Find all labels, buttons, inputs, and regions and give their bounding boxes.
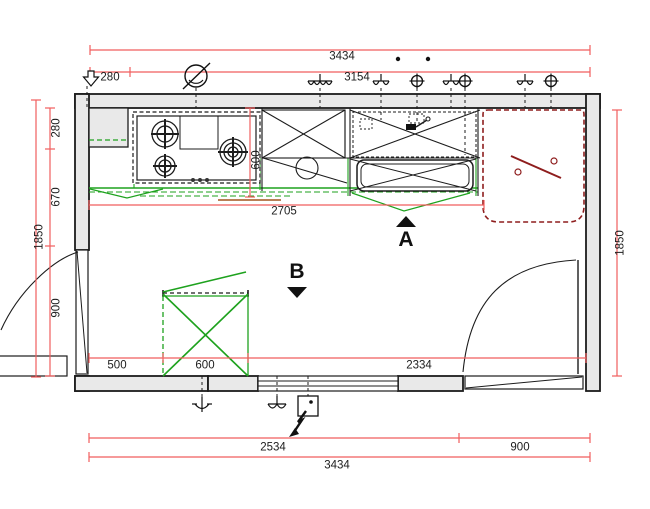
dim-label-left-upper: 280: [51, 118, 63, 137]
window: [258, 376, 398, 391]
left-wall-upper: [75, 94, 89, 250]
top-wall: [75, 94, 600, 108]
ceiling-light-icon: [183, 63, 210, 89]
left-inner-dim: [45, 108, 55, 376]
wall-lamp-icon-2: [443, 74, 459, 85]
floor-plan-drawing: [0, 0, 650, 509]
entry-door: [0, 250, 88, 376]
dim-label-right-total: 1850: [615, 230, 627, 256]
wall-lamp-icon-3: [517, 74, 533, 85]
floor-plan-canvas: 3434 280 3154 2705 600 280 670 1850 900 …: [0, 0, 650, 509]
column: [89, 108, 128, 147]
drain-circle: [296, 157, 318, 179]
cooktop: [133, 112, 260, 183]
pendant-lamp-icon: [192, 397, 212, 412]
sink-unit: [350, 110, 480, 191]
socket-icon-2: [458, 74, 473, 89]
wall-lamp-icon-1: [373, 74, 389, 85]
dim-label-bottom-run: 2534: [260, 442, 286, 454]
dim-label-left-total: 1850: [34, 224, 46, 250]
dim-label-top-run: 3154: [344, 72, 370, 84]
switch-box-icon: [298, 396, 318, 416]
dim-label-top-total: 3434: [329, 51, 355, 63]
section-a-arrow-icon: [396, 216, 416, 227]
dim-label-floor-right: 2334: [406, 360, 432, 372]
dim-label-left-lower: 900: [51, 298, 63, 317]
dim-label-counter-depth: 600: [251, 150, 263, 169]
socket-icon-1: [410, 74, 425, 89]
dim-label-left-mid: 670: [51, 187, 63, 206]
top-run-dim: [90, 67, 590, 77]
patio-door: [463, 260, 583, 389]
bottom-wall-right: [398, 376, 463, 391]
socket-icon-3: [544, 74, 559, 89]
dim-label-top-offset: 280: [100, 72, 119, 84]
entry-arrow-icon: [84, 71, 99, 86]
dim-label-floor-left: 500: [107, 360, 126, 372]
wall-cabinet-x: [262, 110, 347, 183]
ceiling-spot-dots: [396, 57, 430, 61]
bottom-wall-mid: [208, 376, 258, 391]
floor-dim: [89, 353, 586, 363]
wall-lamp-icon-4: [268, 396, 286, 408]
dim-label-bottom-door: 900: [510, 442, 529, 454]
dim-label-bottom-total: 3434: [324, 460, 350, 472]
section-marker-b: B: [289, 260, 304, 284]
dim-label-floor-island: 600: [195, 360, 214, 372]
bottom-wall-left: [75, 376, 208, 391]
dim-label-counter-length: 2705: [271, 206, 297, 218]
control-knobs: [191, 178, 209, 182]
right-wall: [586, 94, 600, 391]
shower-tray: [483, 110, 584, 222]
section-marker-a: A: [398, 228, 413, 252]
section-b-arrow-icon: [287, 287, 307, 298]
multi-socket-icon: [308, 74, 332, 85]
faucet-icon: [406, 117, 430, 130]
